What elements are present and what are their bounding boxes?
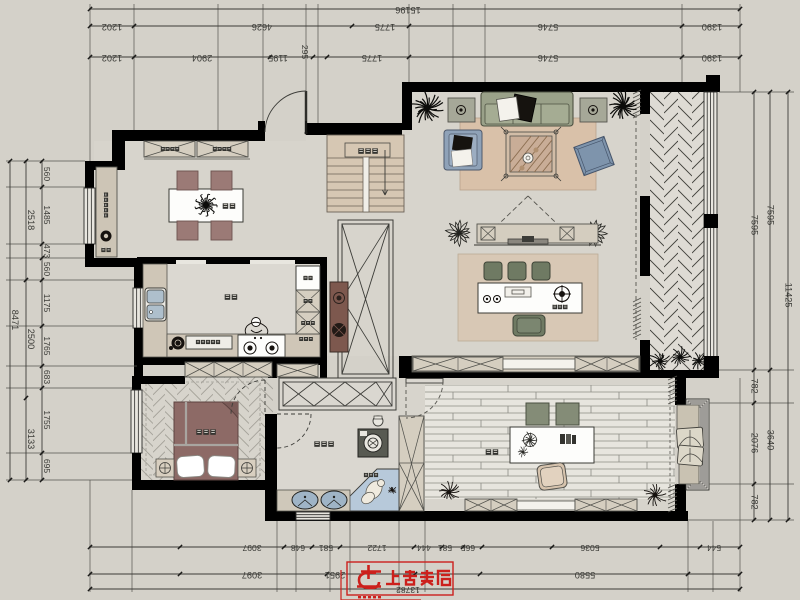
svg-text:13782: 13782	[396, 585, 420, 595]
svg-text:648: 648	[291, 543, 306, 553]
svg-text:3097: 3097	[242, 543, 261, 553]
svg-text:7595: 7595	[750, 215, 760, 235]
svg-text:1202: 1202	[102, 53, 122, 63]
svg-text:560: 560	[42, 262, 52, 277]
svg-text:11425: 11425	[784, 283, 794, 308]
svg-text:444: 444	[417, 543, 432, 553]
svg-text:2951: 2951	[325, 570, 345, 580]
svg-text:1722: 1722	[367, 543, 386, 553]
svg-text:2500: 2500	[26, 329, 36, 349]
svg-text:683: 683	[42, 370, 52, 385]
svg-text:295: 295	[300, 45, 310, 60]
svg-text:473: 473	[42, 244, 52, 259]
svg-text:1390: 1390	[702, 22, 722, 32]
svg-text:7595: 7595	[766, 205, 776, 225]
svg-text:1175: 1175	[42, 294, 52, 313]
svg-text:665: 665	[461, 543, 476, 553]
svg-text:2076: 2076	[750, 433, 760, 453]
svg-text:5580: 5580	[575, 570, 595, 580]
svg-text:5746: 5746	[538, 53, 558, 63]
svg-text:1755: 1755	[42, 410, 52, 429]
svg-text:1195: 1195	[268, 53, 288, 63]
svg-text:782: 782	[750, 494, 760, 509]
svg-text:1390: 1390	[702, 53, 722, 63]
svg-text:4626: 4626	[252, 22, 272, 32]
svg-text:2904: 2904	[192, 53, 212, 63]
svg-text:581: 581	[319, 543, 334, 553]
svg-text:15196: 15196	[395, 5, 421, 15]
svg-text:2518: 2518	[26, 210, 36, 230]
svg-text:544: 544	[707, 543, 722, 553]
svg-text:3097: 3097	[242, 570, 262, 580]
svg-text:1485: 1485	[42, 205, 52, 224]
svg-text:3133: 3133	[26, 429, 36, 449]
svg-text:560: 560	[42, 167, 52, 182]
svg-text:782: 782	[750, 378, 760, 393]
svg-text:5036: 5036	[580, 543, 599, 553]
svg-text:1775: 1775	[375, 22, 395, 32]
svg-text:1765: 1765	[42, 336, 52, 355]
svg-text:5746: 5746	[538, 22, 558, 32]
svg-text:581: 581	[438, 543, 453, 553]
svg-text:695: 695	[42, 459, 52, 474]
svg-text:3640: 3640	[766, 430, 776, 450]
svg-text:1202: 1202	[102, 22, 122, 32]
svg-text:8471: 8471	[10, 310, 20, 330]
svg-text:1775: 1775	[362, 53, 382, 63]
